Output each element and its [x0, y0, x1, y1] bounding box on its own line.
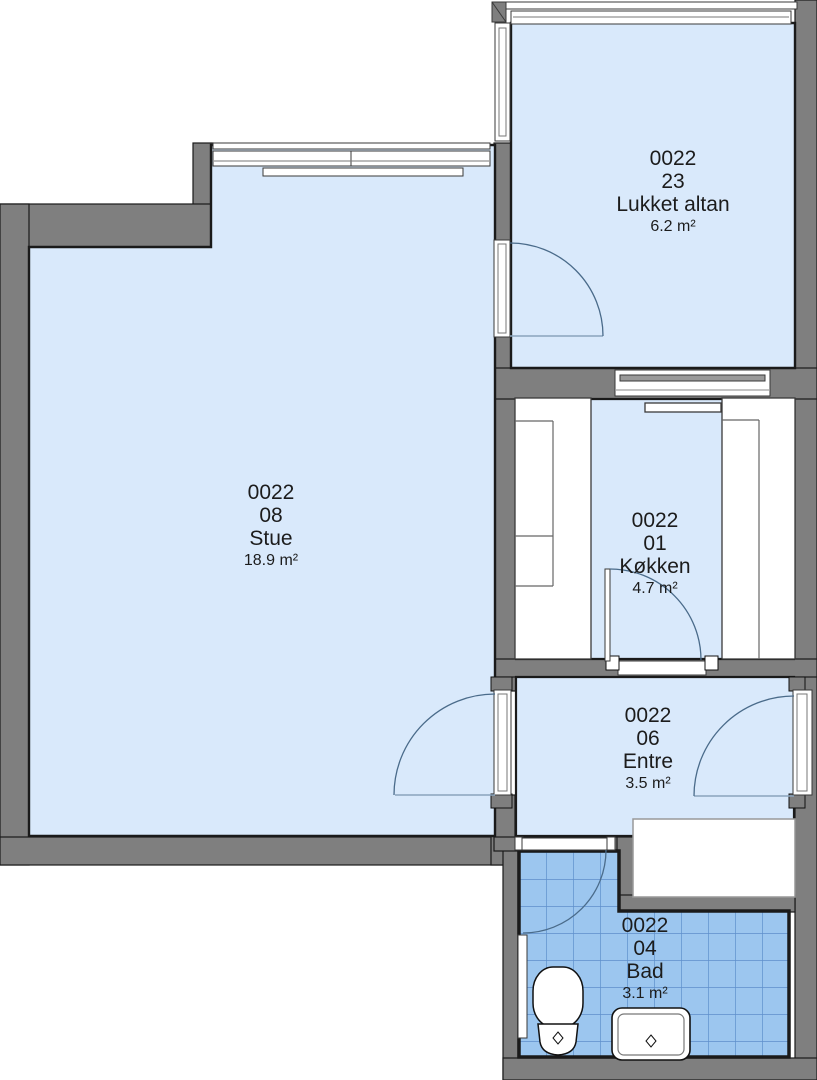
- room-label-stue: 0022 08 Stue 18.9 m²: [151, 481, 391, 571]
- room-number: 01: [535, 532, 775, 555]
- window-sill-stue: [263, 168, 463, 176]
- sink-fixture: [612, 1008, 690, 1060]
- room-label-bad: 0022 04 Bad 3.1 m²: [525, 914, 765, 1004]
- room-area: 4.7 m²: [535, 578, 775, 599]
- room-number: 23: [553, 170, 793, 193]
- window-altan-kitchen: [615, 370, 770, 396]
- room-unit: 0022: [528, 704, 768, 727]
- kitchen-shelf: [645, 403, 721, 412]
- window-altan-top: [492, 2, 797, 24]
- room-name: Køkken: [535, 555, 775, 578]
- wall-right-outer: [795, 0, 817, 1080]
- wall-top-left-band: [0, 204, 213, 248]
- room-name: Stue: [151, 527, 391, 550]
- room-name: Entre: [528, 750, 768, 773]
- wall-bath-bottom: [503, 1058, 817, 1080]
- wall-bottom-stue: [0, 837, 513, 865]
- wall-bath-left: [503, 850, 518, 1080]
- room-number: 06: [528, 727, 768, 750]
- room-unit: 0022: [151, 481, 391, 504]
- room-area: 18.9 m²: [151, 550, 391, 571]
- window-altan-left: [495, 23, 510, 141]
- room-number: 08: [151, 504, 391, 527]
- room-name: Lukket altan: [553, 193, 793, 216]
- room-unit: 0022: [525, 914, 765, 937]
- sink-outer: [612, 1008, 690, 1060]
- room-area: 3.1 m²: [525, 983, 765, 1004]
- room-label-entre: 0022 06 Entre 3.5 m²: [528, 704, 768, 794]
- room-label-lukket-altan: 0022 23 Lukket altan 6.2 m²: [553, 147, 793, 237]
- room-area: 3.5 m²: [528, 773, 768, 794]
- room-area: 6.2 m²: [553, 216, 793, 237]
- room-label-koekken: 0022 01 Køkken 4.7 m²: [535, 509, 775, 599]
- room-number: 04: [525, 937, 765, 960]
- wall-left-outer: [0, 204, 29, 865]
- floor-plan: 0022 23 Lukket altan 6.2 m² 0022 08 Stue…: [0, 0, 817, 1080]
- room-unit: 0022: [535, 509, 775, 532]
- room-unit: 0022: [553, 147, 793, 170]
- wardrobe-closet: [633, 819, 795, 897]
- room-name: Bad: [525, 960, 765, 983]
